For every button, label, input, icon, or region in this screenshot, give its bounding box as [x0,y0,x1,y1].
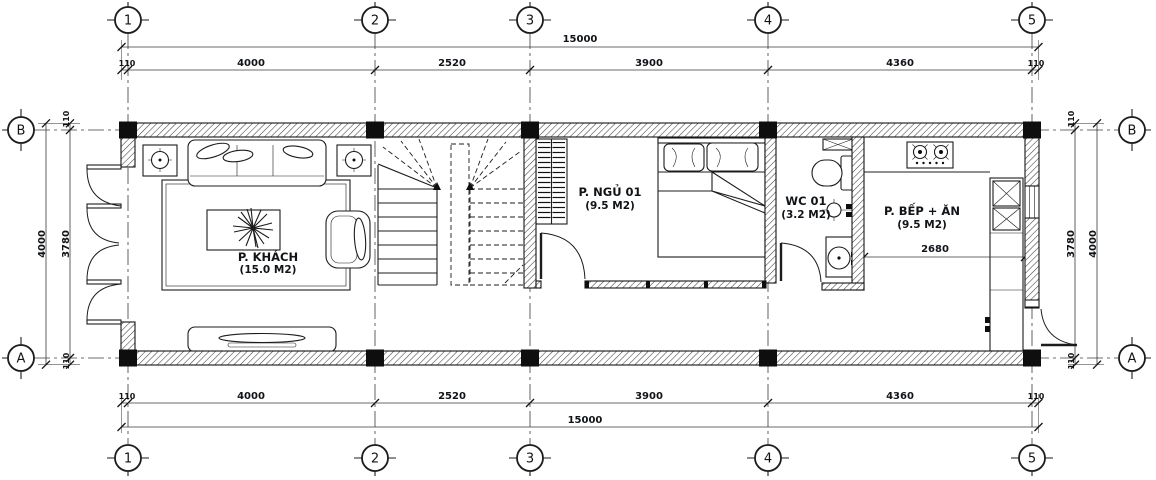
svg-text:2520: 2520 [438,58,466,69]
label-living-area: (15.0 M2) [240,264,297,276]
wall-right-lower [1025,218,1039,308]
svg-text:2: 2 [371,14,379,29]
svg-text:4: 4 [764,14,772,29]
wall-right-upper [1025,137,1039,186]
bed [658,138,765,257]
side-table-left [143,145,177,176]
svg-text:110: 110 [119,392,136,401]
cabinet-handle [985,326,990,332]
grid-bubble-4-top: 4 [747,2,789,33]
svg-text:3: 3 [526,452,534,467]
wall-left-stub-bottom [121,322,135,351]
staircase [378,139,523,285]
label-bedroom-area: (9.5 M2) [585,200,635,212]
dim-kitchen-width: 2680 [921,244,949,255]
tv-icon [219,334,305,343]
svg-text:A: A [1128,352,1137,367]
grid-bubble-A-right: A [1119,337,1151,379]
svg-text:110: 110 [1028,392,1045,401]
armchair [326,211,370,268]
svg-text:3780: 3780 [61,230,72,258]
wall-stair-bedroom [524,137,536,288]
svg-text:4: 4 [764,452,772,467]
wall-bedroom-wc [765,137,776,283]
svg-text:110: 110 [62,352,71,369]
svg-text:1: 1 [124,452,132,467]
wall-wc-kitchen [852,137,864,290]
svg-text:3900: 3900 [635,391,663,402]
headboard [658,138,765,143]
grid-bubble-A-left: A [2,337,34,379]
grid-bubble-1-bottom: 1 [107,445,149,476]
toilet-icon [812,156,853,190]
vent-box [823,139,853,150]
svg-text:4000: 4000 [1088,230,1099,258]
grid-bubble-4-bottom: 4 [747,445,789,476]
main-entrance-folding-door [87,165,121,324]
svg-text:4000: 4000 [37,230,48,258]
dim-top-overall: 15000 [563,34,598,45]
svg-text:A: A [17,352,26,367]
svg-text:3780: 3780 [1066,230,1077,258]
grid-bubbles: 1 2 3 4 5 1 2 3 [2,2,1151,476]
wardrobe [536,139,567,224]
svg-text:110: 110 [1028,59,1045,68]
grid-bubble-2-bottom: 2 [354,445,396,476]
floor-plan-drawing: P. KHÁCH (15.0 M2) P. NGỦ 01 (9.5 M2) WC… [0,0,1156,480]
side-table-right [337,145,371,176]
label-living-room: P. KHÁCH [238,249,298,264]
wc-door [781,243,821,282]
bedroom-door [541,233,585,279]
window-right-wall [1025,186,1039,218]
label-wc-area: (3.2 M2) [781,209,831,221]
door-jamb [1025,300,1039,307]
grid-axis-lines [34,33,1119,445]
label-kitchen-area: (9.5 M2) [897,219,947,231]
wc-room [812,139,858,277]
cooktop-icon [907,142,953,168]
cabinet-handle [985,317,990,323]
svg-text:110: 110 [1067,110,1076,127]
wall-top [121,123,1039,137]
coffee-table [207,208,280,250]
sink-cabinet [985,178,1023,351]
svg-text:B: B [17,124,26,139]
wall-left-stub-top [121,137,135,167]
svg-text:4000: 4000 [237,391,265,402]
grid-bubble-B-right: B [1119,109,1151,151]
grid-bubble-5-top: 5 [1011,2,1053,33]
svg-text:4000: 4000 [237,58,265,69]
svg-text:3: 3 [526,14,534,29]
grid-bubble-2-top: 2 [354,2,396,33]
wall-bottom [121,351,1039,365]
label-wc: WC 01 [785,194,826,208]
svg-text:5: 5 [1028,452,1036,467]
pillow [664,144,704,171]
bedroom [536,138,765,257]
svg-text:2: 2 [371,452,379,467]
label-kitchen: P. BẾP + ĂN [884,202,960,218]
stair-void-railing [451,144,469,285]
grid-bubble-1-top: 1 [107,2,149,33]
grid-bubble-B-left: B [2,109,34,151]
svg-text:1: 1 [124,14,132,29]
grid-bubble-5-bottom: 5 [1011,445,1053,476]
sofa [188,140,326,186]
tv-console [188,327,336,352]
pillow [707,143,758,171]
svg-text:4360: 4360 [886,58,914,69]
wall-partition-stub [536,281,541,288]
svg-text:5: 5 [1028,14,1036,29]
wall-wc-bottom [822,283,864,290]
living-room [143,140,371,352]
back-door [1041,309,1077,345]
svg-text:2520: 2520 [438,391,466,402]
svg-text:3900: 3900 [635,58,663,69]
svg-text:4360: 4360 [886,391,914,402]
label-bedroom: P. NGỦ 01 [578,183,641,199]
grid-bubble-3-top: 3 [509,2,551,33]
svg-text:110: 110 [119,59,136,68]
svg-text:110: 110 [62,110,71,127]
svg-text:110: 110 [1067,352,1076,369]
dimension-lines [38,40,1104,433]
grid-bubble-3-bottom: 3 [509,445,551,476]
dim-bottom-overall: 15000 [568,415,603,426]
svg-text:B: B [1128,124,1137,139]
wall-bedroom-partition [585,281,766,288]
